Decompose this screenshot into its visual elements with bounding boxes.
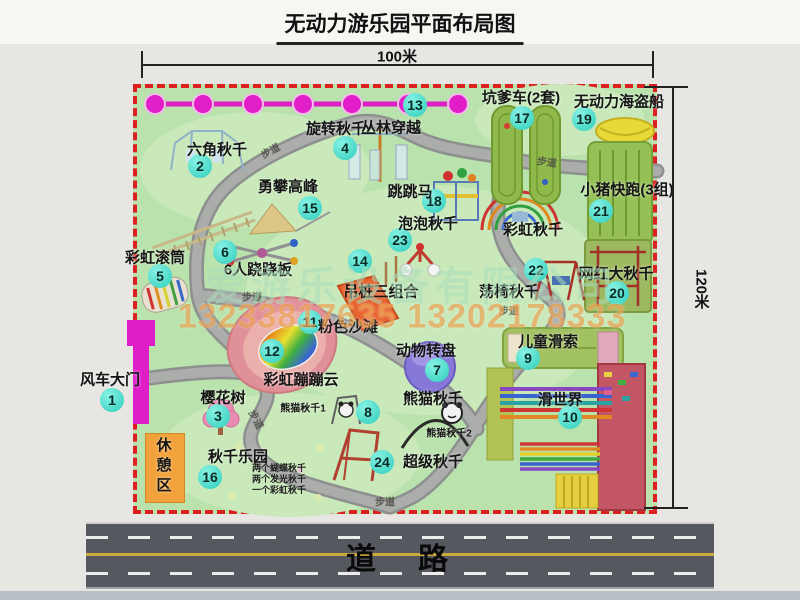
label-pit-car: 坑爹车(2套) — [482, 87, 560, 108]
label-pirate-ship: 无动力海盗船 — [574, 91, 664, 112]
labels-layer: 1风车大门2六角秋千3樱花树4旋转秋千5彩虹滚筒66人跷跷板7动物转盘8熊猫秋千… — [0, 0, 800, 600]
top-dim-tick-right — [652, 51, 654, 78]
label-sakura-tree: 樱花树 — [200, 387, 245, 408]
right-dim-tick-bottom — [644, 507, 688, 509]
badge-sakura-tree: 3 — [206, 404, 230, 428]
label-panda-swing-2: 熊猫秋千2 — [426, 425, 472, 440]
badge-big-net-swing: 20 — [605, 281, 629, 305]
label-big-net-swing: 网红大秋千 — [578, 263, 653, 284]
path-label-0: 步道 — [258, 139, 283, 162]
right-dimension-label: 120米 — [691, 269, 712, 309]
path-label-1: 步道 — [536, 152, 558, 170]
label-brave-peak: 勇攀高峰 — [258, 176, 318, 197]
badge-pit-car: 17 — [510, 106, 534, 130]
label-pile-combo: 吊桩三组合 — [343, 281, 418, 302]
label-jungle-crossing: 丛林穿越 — [361, 117, 421, 138]
top-dimension-label: 100米 — [377, 46, 417, 67]
badge-pig-run: 21 — [589, 199, 613, 223]
label-rainbow-swing: 彩虹秋千 — [503, 219, 563, 240]
label-panda-swing-1: 熊猫秋千1 — [280, 400, 326, 415]
page-title: 无动力游乐园平面布局图 — [277, 8, 524, 45]
badge-animal-turntable: 7 — [425, 358, 449, 382]
label-animal-turntable: 动物转盘 — [396, 340, 456, 361]
badge-panda-swing: 8 — [356, 400, 380, 424]
label-windmill-gate: 风车大门 — [80, 369, 140, 390]
label-jump-horse: 跳跳马 — [387, 181, 432, 202]
badge-rotating-swing: 4 — [333, 136, 357, 160]
path-label-3: 步道 — [499, 303, 519, 318]
screenshot-root: 无动力游乐园平面布局图 100米 120米 — [0, 0, 800, 600]
label-rest-area: 休憩区 — [153, 437, 174, 497]
label-rotating-swing: 旋转秋千 — [306, 118, 366, 139]
label-pink-beach: 粉色沙滩 — [318, 316, 378, 337]
label-seesaw-6p: 6人跷跷板 — [224, 259, 292, 280]
badge-super-swing: 24 — [370, 450, 394, 474]
label-slide-world: 滑世界 — [537, 389, 582, 410]
label-rainbow-roller: 彩虹滚筒 — [125, 247, 185, 268]
badge-rainbow-cloud: 12 — [260, 339, 284, 363]
sublist-swing-park: 两个蝴蝶秋千两个发光秋千一个彩虹秋千 — [252, 463, 306, 496]
label-super-swing: 超级秋千 — [403, 451, 463, 472]
label-chair-swing: 荡椅秋千 — [479, 281, 539, 302]
path-label-2: 步道 — [242, 289, 262, 304]
label-rainbow-cloud: 彩虹蹦蹦云 — [263, 369, 338, 390]
right-dimension-line — [672, 87, 674, 508]
label-panda-swing: 熊猫秋千 — [403, 388, 463, 409]
path-label-5: 步道 — [375, 494, 395, 509]
label-hex-swing: 六角秋千 — [187, 139, 247, 160]
badge-chair-swing: 22 — [524, 258, 548, 282]
badge-jungle-crossing: 13 — [403, 93, 427, 117]
label-pig-run: 小猪快跑(3组) — [580, 179, 673, 200]
badge-windmill-gate: 1 — [100, 388, 124, 412]
path-label-4: 步道 — [246, 407, 269, 432]
badge-brave-peak: 15 — [298, 196, 322, 220]
badge-pile-combo: 14 — [348, 249, 372, 273]
badge-swing-park: 16 — [198, 465, 222, 489]
top-dim-tick-left — [141, 51, 143, 78]
right-dim-tick-top — [644, 86, 688, 88]
label-bubble-swing: 泡泡秋千 — [398, 213, 458, 234]
badge-rainbow-roller: 5 — [148, 264, 172, 288]
label-kids-zipline: 儿童滑索 — [518, 331, 578, 352]
